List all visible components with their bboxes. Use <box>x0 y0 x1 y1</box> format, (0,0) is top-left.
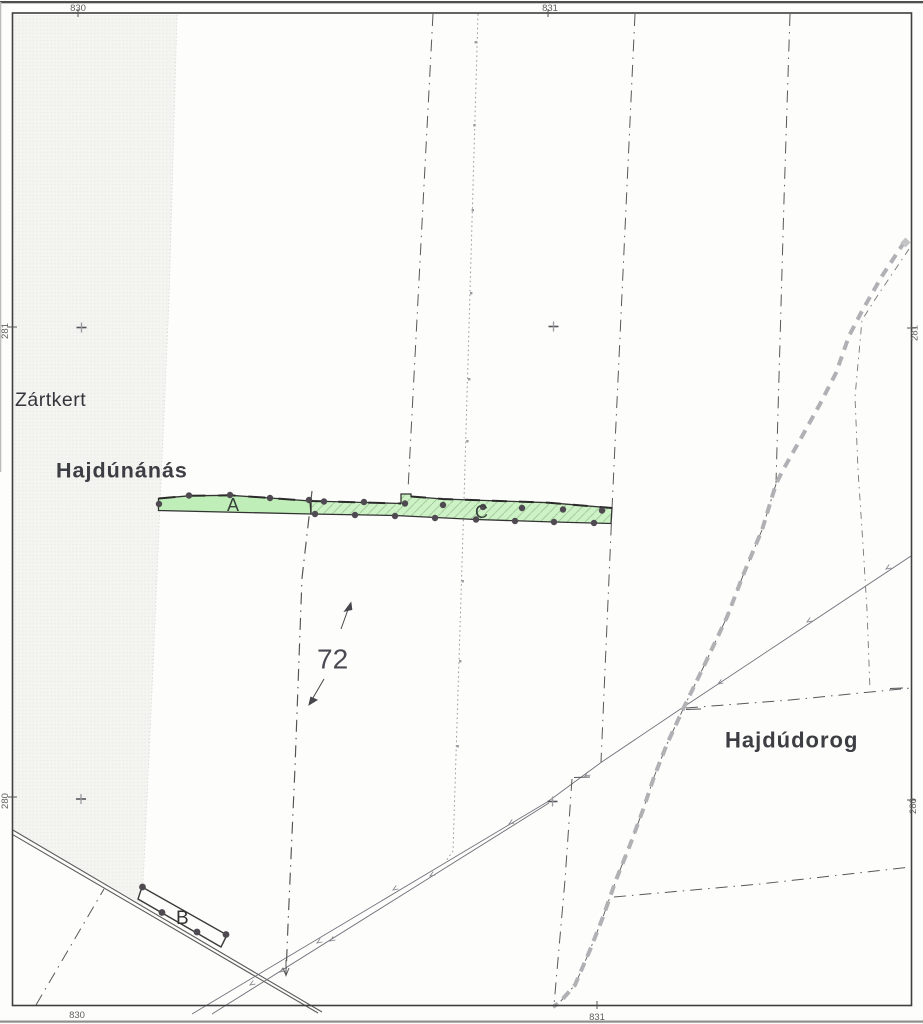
svg-text:Hajdúnánás: Hajdúnánás <box>56 459 188 483</box>
svg-text:831: 831 <box>542 3 558 14</box>
svg-text:C: C <box>475 502 488 522</box>
svg-text:72: 72 <box>317 644 348 675</box>
svg-text:B: B <box>176 908 189 929</box>
svg-text:281: 281 <box>0 323 11 339</box>
svg-text:830: 830 <box>69 1010 85 1021</box>
svg-text:Hajdúdorog: Hajdúdorog <box>725 728 858 753</box>
svg-text:Zártkert: Zártkert <box>15 389 86 411</box>
svg-text:280: 280 <box>0 793 11 809</box>
svg-text:281: 281 <box>910 325 921 341</box>
svg-text:280: 280 <box>908 798 919 814</box>
svg-text:831: 831 <box>589 1012 605 1023</box>
svg-text:A: A <box>227 495 239 515</box>
svg-text:830: 830 <box>70 3 86 14</box>
